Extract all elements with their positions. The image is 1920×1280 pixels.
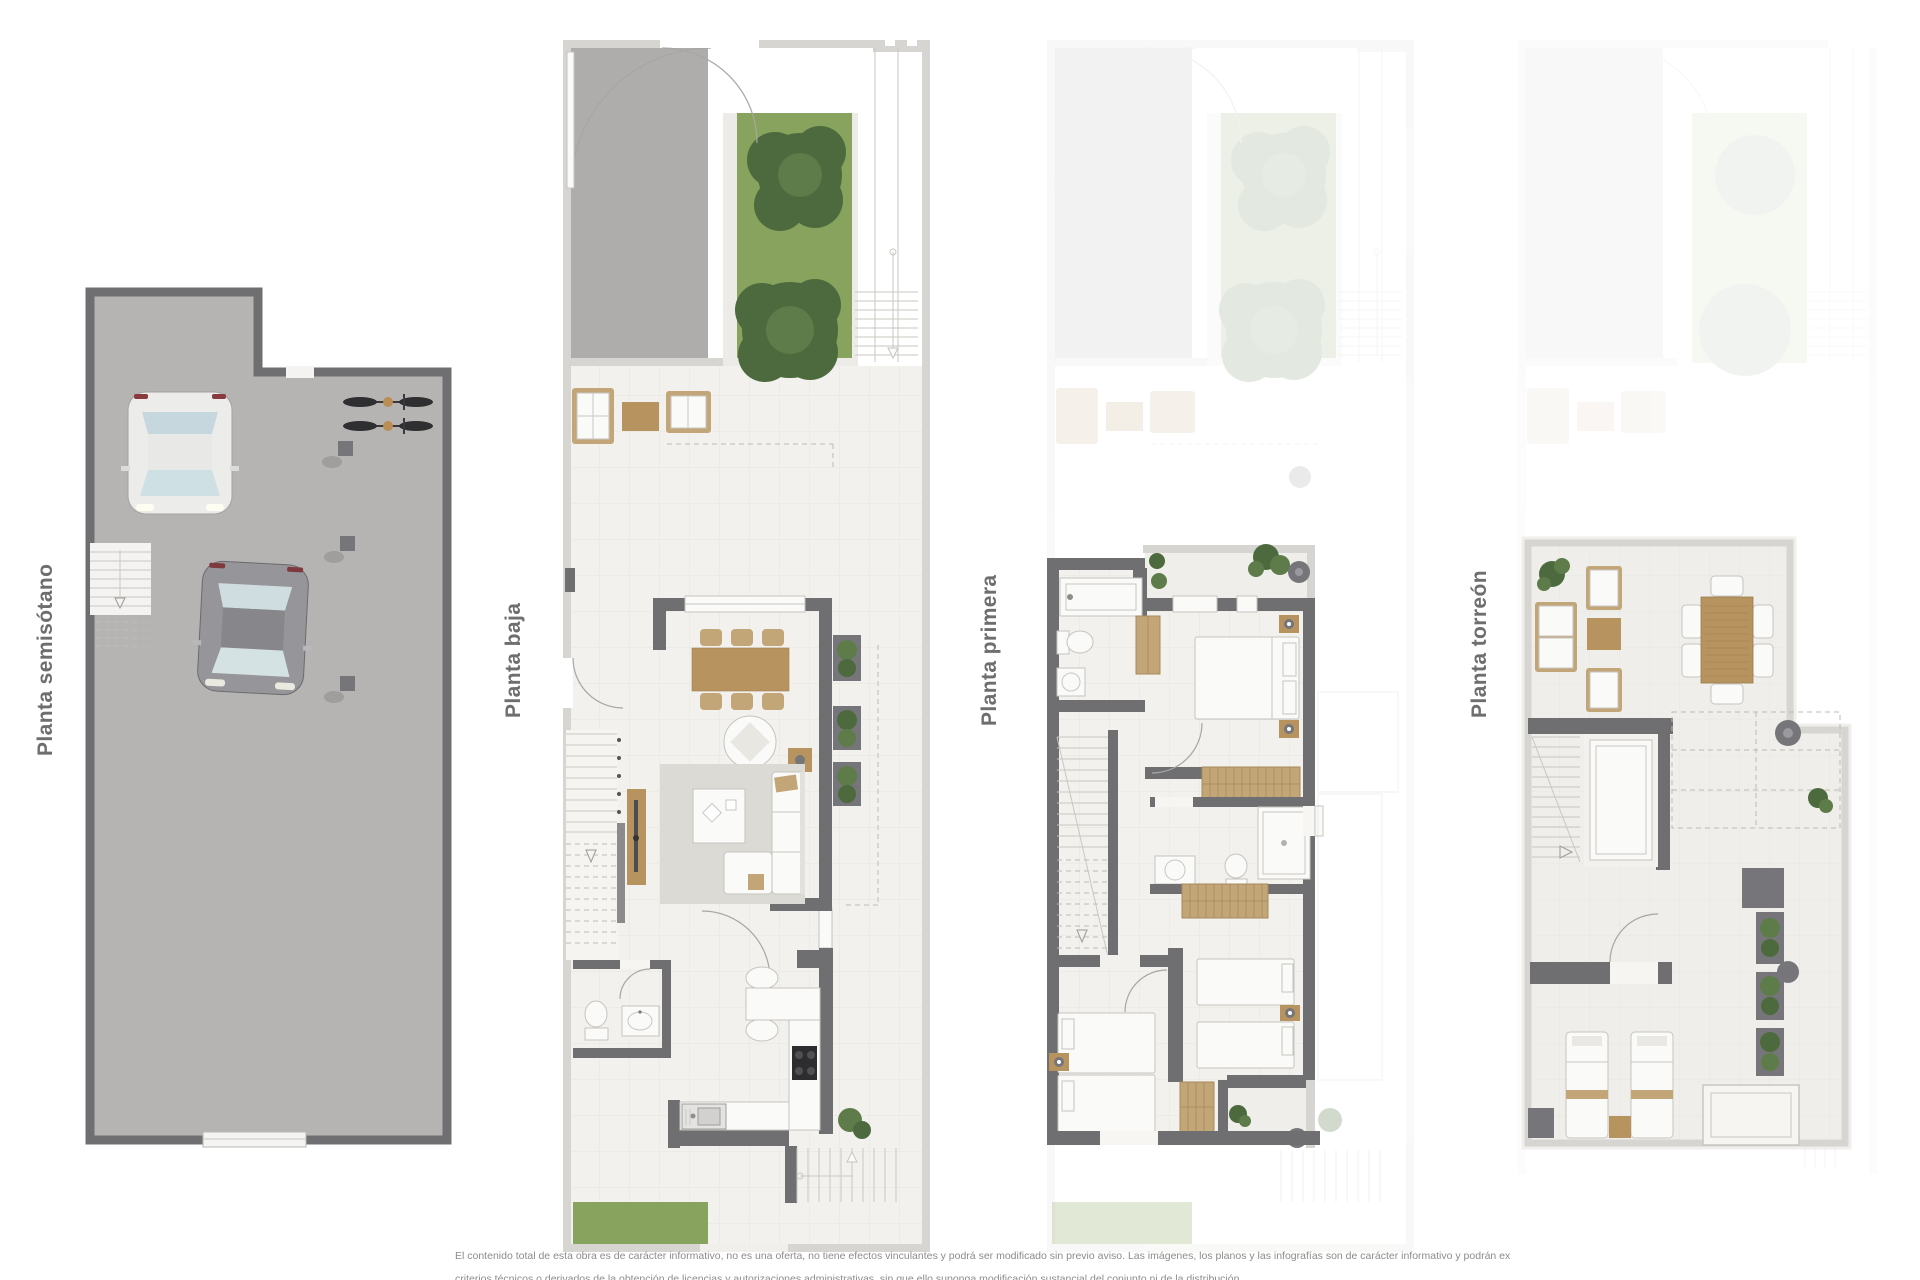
floorplan-baja xyxy=(555,34,940,1260)
staircase xyxy=(566,730,625,960)
plan-label-primera: Planta primera xyxy=(978,575,1002,727)
planter-icon xyxy=(833,635,861,806)
dining-table xyxy=(692,629,789,710)
sink-icon xyxy=(1057,668,1085,696)
driveway xyxy=(567,48,711,362)
wardrobe xyxy=(1202,767,1300,801)
cooktop-icon xyxy=(792,1046,817,1080)
plant-icon xyxy=(1151,573,1167,589)
sink-icon xyxy=(1155,856,1195,884)
sun-lounger xyxy=(1566,1032,1608,1138)
bathtub-icon xyxy=(1060,578,1142,616)
bed-icon xyxy=(1195,637,1299,719)
plan-label-baja: Planta baja xyxy=(502,603,526,718)
storage-block xyxy=(1528,1108,1554,1138)
sun-lounger xyxy=(1631,1032,1673,1138)
exterior-stairs xyxy=(855,249,918,358)
wardrobe xyxy=(1182,884,1268,918)
armchair-icon xyxy=(724,716,776,768)
stairs-down-arrow xyxy=(888,348,898,358)
disclaimer-line-2: criterios técnicos o derivados de la obt… xyxy=(455,1273,1510,1280)
window xyxy=(1173,596,1217,612)
floorplan-semisotano xyxy=(70,285,460,1165)
plan-label-semisotano: Planta semisótano xyxy=(34,564,58,756)
bed-icon xyxy=(1058,1075,1155,1132)
toilet-icon xyxy=(1225,854,1247,888)
bed-icon xyxy=(1197,1022,1294,1068)
toilet-icon xyxy=(1057,631,1093,654)
chimney-block xyxy=(1742,868,1784,908)
sink-icon xyxy=(622,1006,659,1036)
disclaimer-line-1: El contenido total de esta obra es de ca… xyxy=(455,1250,1510,1263)
floorplan-primera xyxy=(1040,34,1425,1260)
toilet-icon xyxy=(585,1001,608,1040)
coffee-table xyxy=(693,789,745,843)
plant-icon xyxy=(1149,553,1165,569)
floorplans-page: Planta semisótano xyxy=(0,0,1920,1280)
car-icon xyxy=(121,392,239,514)
shower-icon xyxy=(1258,807,1310,879)
tv-console xyxy=(627,789,646,885)
lower-roof-annex xyxy=(1703,1085,1799,1145)
bed-icon xyxy=(1058,1013,1155,1073)
tree-icon xyxy=(735,279,841,382)
side-table xyxy=(1609,1116,1631,1138)
plan-label-torreon: Planta torreón xyxy=(1468,570,1492,718)
wardrobe xyxy=(1180,1082,1214,1132)
wall-opening xyxy=(286,366,314,378)
gate-leaf xyxy=(567,52,574,188)
terrace xyxy=(1143,544,1315,603)
patio-wall xyxy=(563,358,723,366)
floorplan-torreon xyxy=(1505,34,1890,1174)
window xyxy=(1237,596,1257,612)
coffee-table xyxy=(1587,618,1621,650)
kitchen-sink-icon xyxy=(682,1104,726,1129)
grass-patch xyxy=(573,1202,708,1244)
garden xyxy=(723,113,858,382)
tree-icon xyxy=(747,126,846,231)
ghost-side-structures xyxy=(1318,692,1398,1080)
roof-terrace xyxy=(1528,543,1845,1168)
bed-icon xyxy=(1197,959,1294,1005)
ghost-steps xyxy=(1805,1148,1835,1168)
stair-skylight xyxy=(1584,734,1658,867)
car-icon xyxy=(190,560,317,696)
first-floor xyxy=(1047,544,1323,1148)
planter-icon xyxy=(1756,912,1784,1076)
